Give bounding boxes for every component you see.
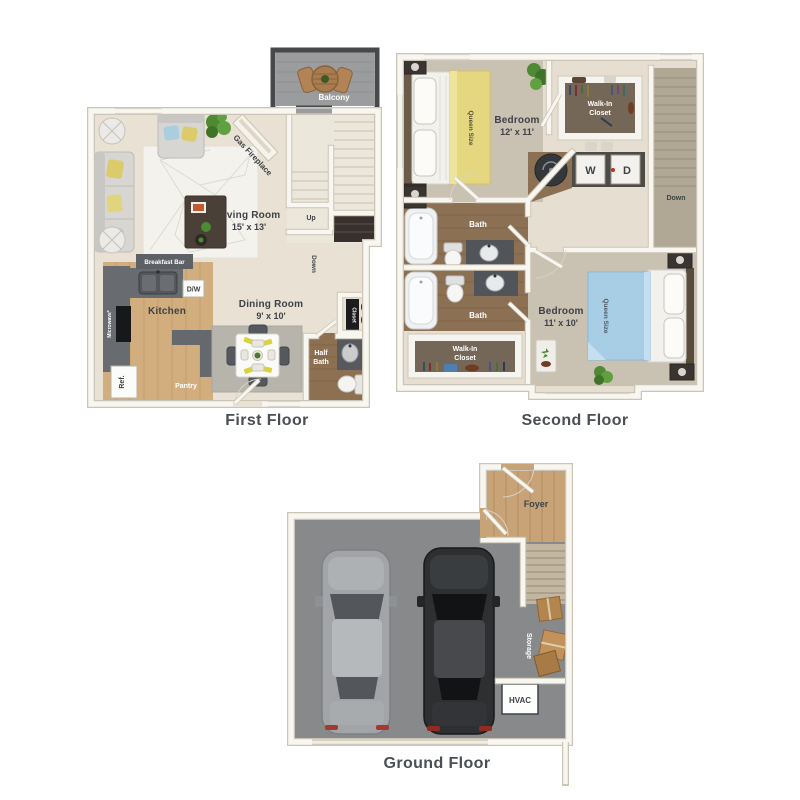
- foyer: Foyer: [483, 469, 566, 542]
- bath2-toilet: [446, 276, 464, 302]
- bath2-label: Bath: [469, 311, 487, 320]
- coffee-table: [185, 196, 226, 248]
- bed1-pillow-2: [414, 130, 436, 176]
- storage-label: Storage: [525, 633, 532, 659]
- stairs-floor: [654, 68, 698, 248]
- dining-room-label: Dining Room: [239, 299, 303, 310]
- pantry-label: Pantry: [175, 383, 197, 390]
- closet2-label-2: Closet: [454, 355, 476, 362]
- bed2-blanket-fold: [644, 272, 650, 360]
- armchair: [158, 112, 204, 158]
- bed1-blanket-fold: [450, 71, 457, 184]
- balcony: Balcony: [273, 50, 377, 107]
- bed1-headboard: [404, 70, 412, 186]
- bed2-pillow-2: [664, 318, 684, 358]
- half-bath-toilet: [338, 375, 364, 394]
- living-room-label: Living Room: [218, 210, 281, 221]
- bed2-nightstand-2: [670, 364, 694, 380]
- kitchen-sink: [139, 270, 177, 294]
- washer-label: W: [585, 165, 596, 177]
- kitchen-label: Kitchen: [148, 306, 186, 317]
- bed2-nightstand: [668, 252, 692, 268]
- ground-floor-plan: Foyer: [291, 467, 569, 786]
- microwave-label: Microwave*: [107, 310, 113, 338]
- bath1-label: Bath: [469, 220, 487, 229]
- bedroom1-dims: 12' x 11': [500, 127, 534, 137]
- stairwell-opening: [334, 216, 376, 242]
- bedroom2-dims: 11' x 10': [544, 318, 578, 328]
- closet2-label-1: Walk-In: [453, 346, 478, 353]
- hvac-label: HVAC: [509, 696, 531, 705]
- kitchen: Microwave* Breakfast Bar D/W Ref. Kitche…: [103, 254, 213, 400]
- bath2-tub-inner: [409, 277, 433, 324]
- second-floor-plan: Down Walk-In Closet: [398, 55, 701, 430]
- car-black: [417, 548, 500, 734]
- half-bath-label-1: Half: [314, 350, 328, 357]
- half-bath: Half Bath: [308, 333, 364, 402]
- dryer-label: D: [623, 165, 631, 177]
- bed1-size-label: Queen Size: [467, 110, 474, 145]
- ground-floor-stairs: [526, 544, 566, 604]
- stairs-down-label: Down: [310, 255, 317, 273]
- bed2-pillow: [664, 274, 684, 314]
- patio-table: [312, 66, 338, 92]
- bedroom1-label: Bedroom: [494, 115, 539, 126]
- closet1-label-1: Walk-In: [588, 101, 613, 108]
- second-floor-stairs: Down: [654, 68, 698, 248]
- bed1-pillow: [414, 78, 436, 124]
- dining-table: [236, 334, 279, 377]
- bedroom2-label: Bedroom: [538, 306, 583, 317]
- stairs-down-label-2f: Down: [666, 195, 685, 202]
- bath1-tub-inner: [409, 213, 433, 259]
- closet1-label-2: Closet: [589, 110, 611, 117]
- first-floor-title: First Floor: [225, 412, 309, 429]
- car-silver: [315, 550, 397, 734]
- ground-floor-title: Ground Floor: [383, 755, 490, 772]
- floorplan-drawing: Balcony: [0, 0, 800, 800]
- balcony-label: Balcony: [318, 93, 350, 102]
- stairs-up-label: Up: [306, 215, 315, 222]
- walk-in-closet-2: Walk-In Closet: [408, 334, 522, 378]
- ground-stairs-floor: [526, 544, 566, 604]
- closet1-stool: [585, 142, 597, 151]
- closet-label: Closet: [351, 307, 357, 323]
- foyer-label: Foyer: [524, 499, 549, 509]
- garage-door: [312, 740, 488, 745]
- dining-room-dims: 9' x 10': [256, 311, 285, 321]
- bedroom2-side-table: [536, 340, 556, 372]
- laundry: W D: [535, 152, 645, 187]
- living-room-dims: 15' x 13': [232, 222, 266, 232]
- walk-in-closet-1: Walk-In Closet: [558, 76, 642, 151]
- first-floor-plan: Balcony: [91, 50, 378, 429]
- laundry-detail: [611, 168, 615, 172]
- half-bath-label-2: Bath: [313, 359, 329, 366]
- bed2-size-label: Queen Size: [602, 298, 609, 333]
- closet1-stool-2: [601, 142, 613, 151]
- dishwasher-label: D/W: [187, 287, 201, 294]
- second-floor-title: Second Floor: [521, 412, 628, 429]
- hvac-closet: HVAC: [502, 684, 538, 714]
- refrigerator-label: Ref.: [119, 375, 126, 388]
- breakfast-bar-label: Breakfast Bar: [144, 259, 185, 266]
- bed2-blanket: [588, 272, 650, 360]
- microwave: [116, 306, 131, 342]
- floorplan-page: Balcony: [0, 0, 800, 800]
- bed2-headboard: [686, 268, 694, 364]
